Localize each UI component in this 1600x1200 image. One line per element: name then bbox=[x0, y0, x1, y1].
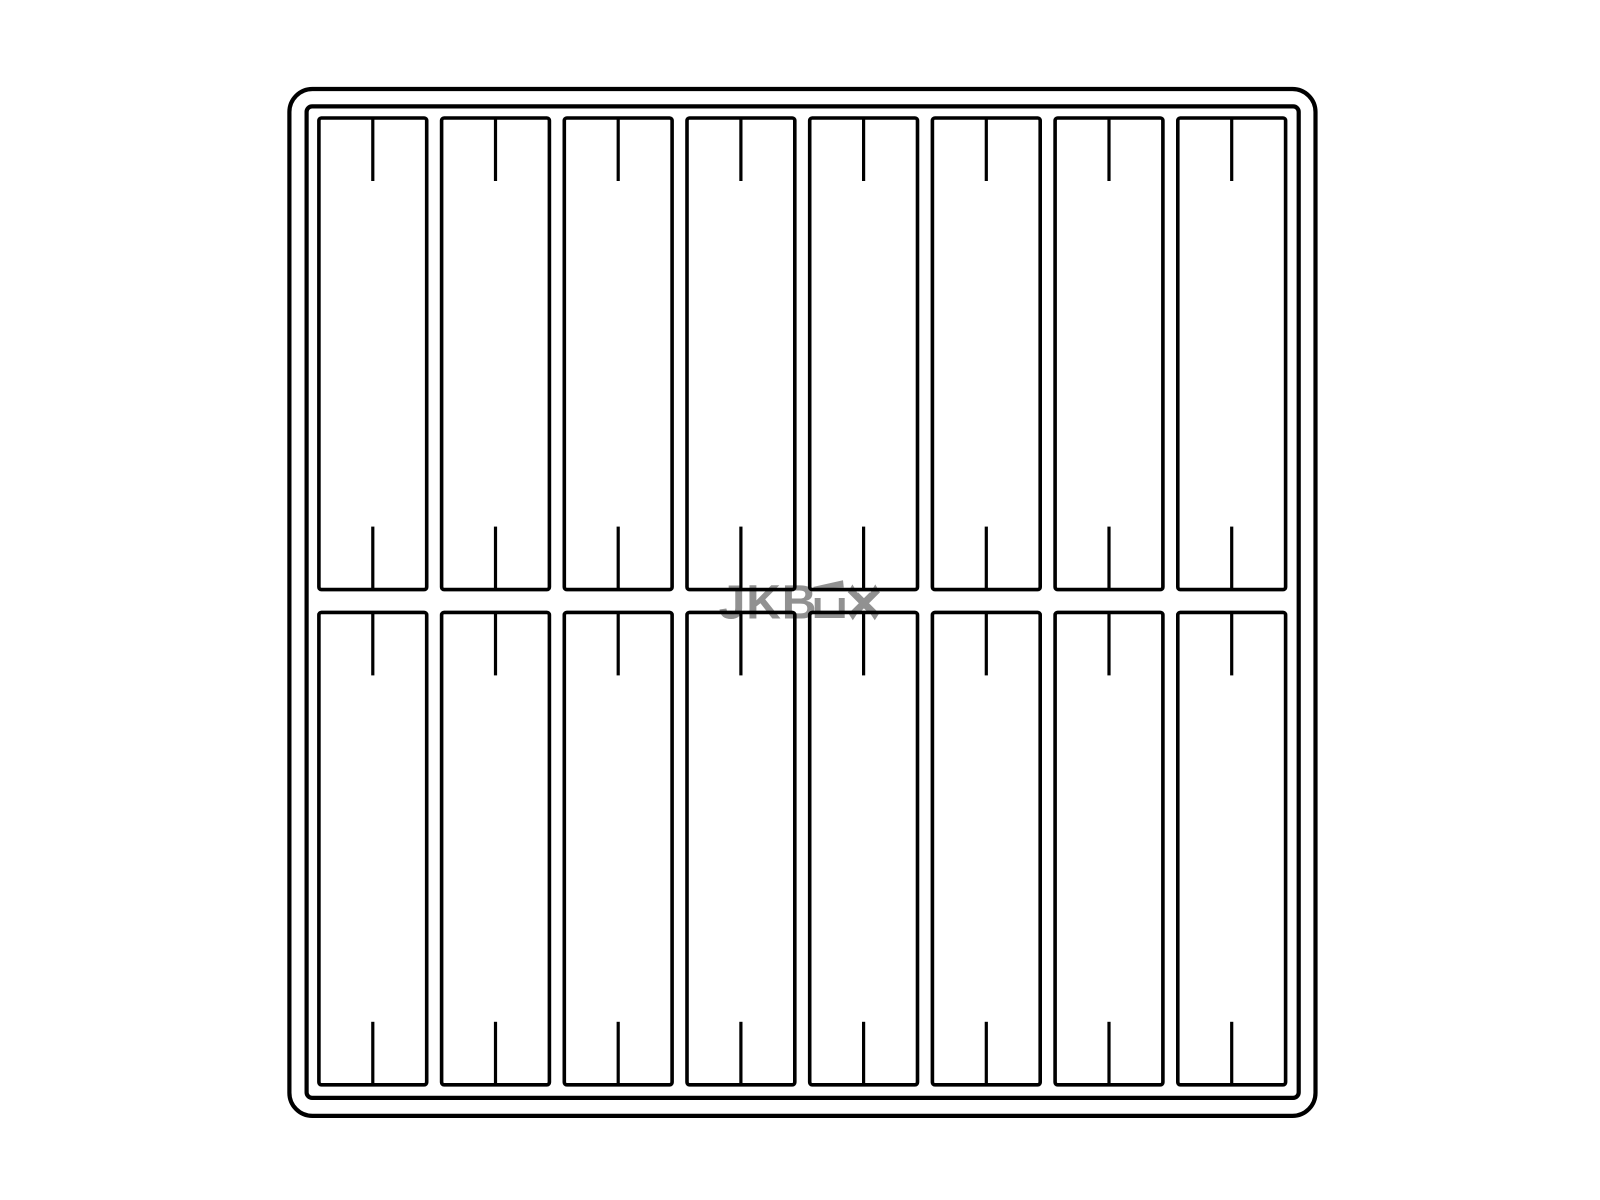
svg-text:K: K bbox=[746, 577, 781, 630]
